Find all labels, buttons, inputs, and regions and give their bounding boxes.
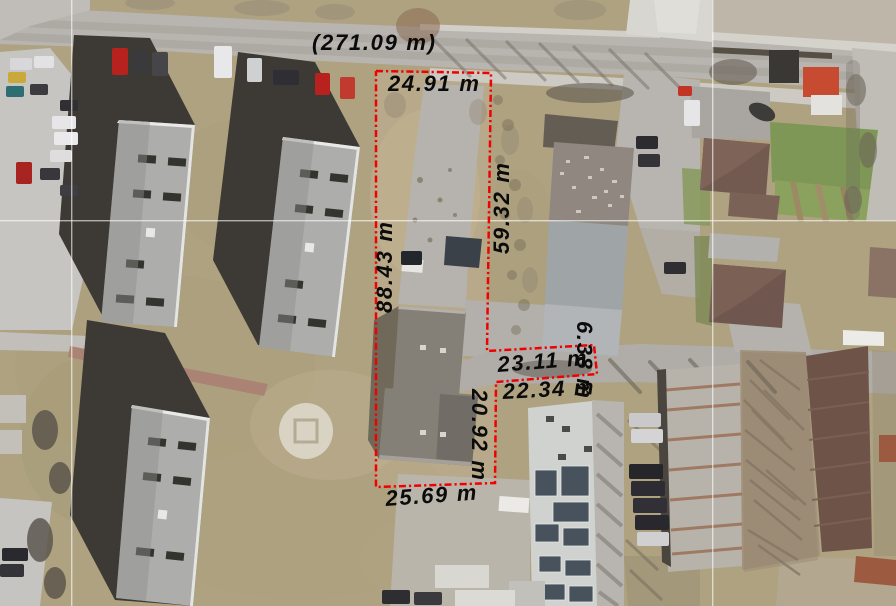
svg-text:22.34 m: 22.34 m — [501, 374, 596, 404]
svg-text:24.91 m: 24.91 m — [387, 71, 481, 96]
svg-text:88.43 m: 88.43 m — [372, 220, 397, 313]
svg-text:59.32 m: 59.32 m — [489, 161, 514, 254]
svg-text:(271.09 m): (271.09 m) — [312, 30, 437, 55]
svg-text:20.92 m: 20.92 m — [467, 388, 492, 482]
